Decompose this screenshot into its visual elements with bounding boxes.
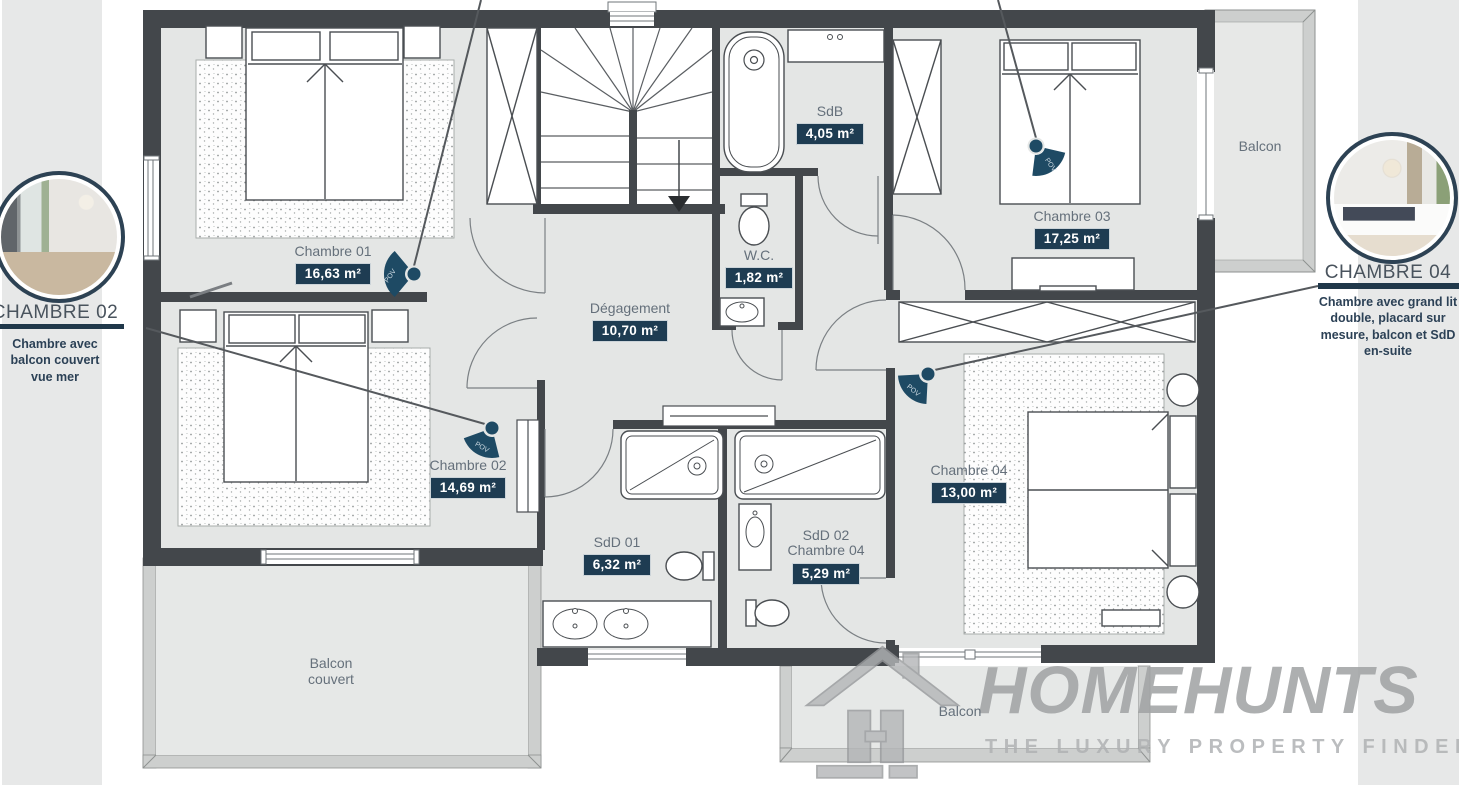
pillow <box>299 315 365 343</box>
dresser-chambre-03 <box>1012 258 1134 290</box>
furniture-chambre-02 <box>178 283 430 526</box>
floor-plan-page: { "plan": { "floor_type": "floor-plan-fi… <box>0 0 1459 785</box>
balcony-label-bottom: Balcon <box>880 703 1040 719</box>
pillow <box>229 315 295 343</box>
pillow <box>252 32 320 60</box>
toilet <box>739 207 769 245</box>
callout-desc-right: Chambre avec grand lit double, placard s… <box>1318 294 1458 359</box>
nightstand <box>404 26 440 58</box>
toilet-tank <box>741 194 767 206</box>
homehunts-wordmark: HOMEHUNTS <box>978 652 1419 729</box>
homehunts-tagline: THE LUXURY PROPERTY FINDERS <box>985 736 1459 759</box>
pillow <box>330 32 398 60</box>
callout-rule-left <box>0 324 124 329</box>
callout-title-left: CHAMBRE 02 <box>0 302 125 324</box>
pillow <box>1170 494 1196 566</box>
bench <box>1102 610 1160 626</box>
pillow <box>1170 416 1196 488</box>
nightstand <box>180 310 216 342</box>
photo-chambre-04 <box>1326 132 1458 264</box>
balcony-covered-line2: couvert <box>251 671 411 687</box>
nightstand <box>372 310 408 342</box>
pillow <box>1072 43 1136 70</box>
callout-title-right: CHAMBRE 04 <box>1318 262 1458 284</box>
balcony-covered-line1: Balcon <box>251 655 411 671</box>
balcony-label-top-right: Balcon <box>1180 138 1340 154</box>
toilet <box>666 552 702 580</box>
toilet <box>755 600 789 626</box>
callout-rule-right <box>1318 283 1459 289</box>
callout-desc-left: Chambre avec balcon couvert vue mer <box>3 336 107 385</box>
sink-counter <box>788 30 884 62</box>
balcony-label-covered: Balcon couvert <box>251 655 411 687</box>
toilet-tank <box>703 552 714 580</box>
side-table <box>1167 576 1199 608</box>
side-table <box>1167 374 1199 406</box>
nightstand <box>206 26 242 58</box>
staircase <box>541 28 712 212</box>
